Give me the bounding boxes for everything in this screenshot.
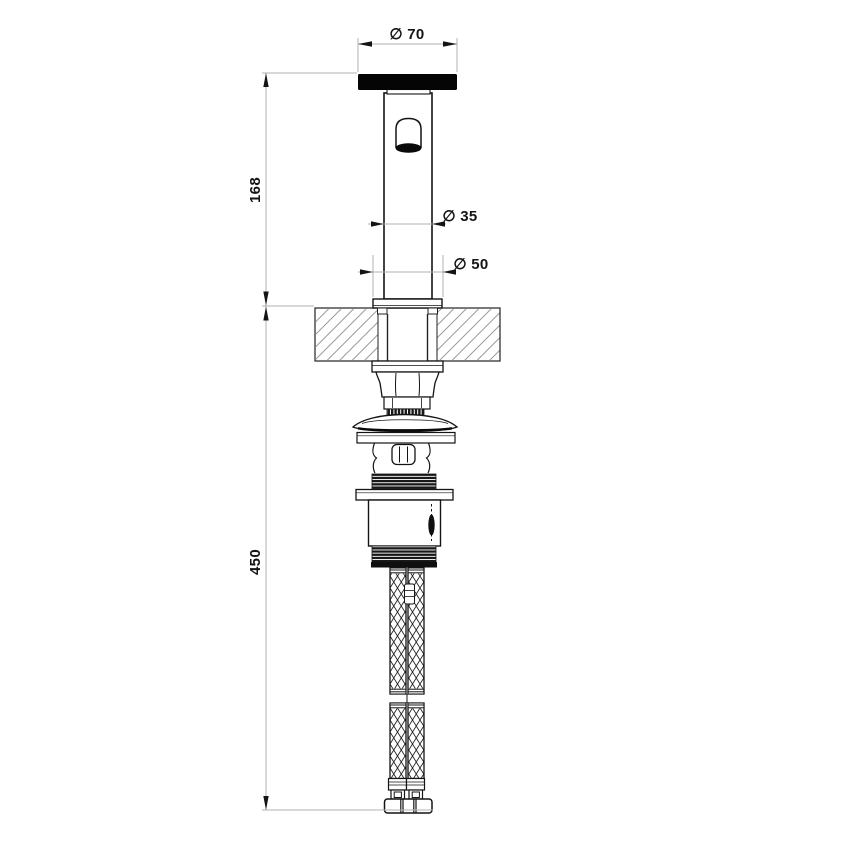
flange-lip-left [378,308,388,314]
ferrule-left [389,779,407,791]
arrow-down-icon [263,796,268,810]
faucet-body-cylinder [384,93,432,299]
ferrule-right [407,779,425,791]
side-port-detail [428,515,434,536]
countertop-hatch-left [316,309,378,360]
shank-tube-fill [388,314,428,361]
arrow-down-icon [263,292,268,306]
drain-collar [384,397,430,409]
dim-168-label: 168 [247,177,264,203]
mounting-shank [378,308,438,361]
faucet-top-disc [358,74,457,90]
hose-left-segment-a [390,568,406,694]
crimp-window-left [394,792,401,798]
hose-right-segment-b [408,703,424,779]
dimension-dia-70: ∅ 70 [358,26,457,72]
dim-dia-35-label: ∅ 35 [442,208,477,225]
drain-knob [392,445,415,465]
waste-plate [357,433,455,444]
base-flange [373,299,442,308]
arrow-up-icon [263,307,268,321]
backing-washer [372,361,443,372]
arrow-left-icon [358,41,372,46]
threaded-section-upper [372,474,436,489]
hose-end-fittings [385,779,433,814]
spout-outlet-opening [396,143,422,153]
mounting-hex-nut [376,372,439,397]
technical-drawing-canvas: ∅ 70 168 450 ∅ 35 ∅ 50 [0,0,850,850]
threaded-section-lower [372,546,436,562]
flexible-hoses [385,568,433,813]
dim-dia-70-label: ∅ 70 [389,26,424,43]
crimp-window-right [412,792,419,798]
drawing-page: ∅ 70 168 450 ∅ 35 ∅ 50 [0,0,850,850]
arrow-up-icon [263,73,268,87]
lower-flange [356,490,453,501]
thread-end-bar [371,562,437,568]
faucet-neck [387,90,430,95]
flange-lip-right [428,308,438,314]
drain-body-right [427,443,431,473]
arrow-right-icon [371,221,384,226]
dim-dia-50-label: ∅ 50 [453,256,488,273]
dim-450-label: 450 [247,549,264,575]
undercounter-hardware [353,361,457,568]
countertop-hatch-right [437,309,500,360]
arrow-right-icon [360,269,373,274]
drain-body-left [373,443,377,473]
dimension-height-168: 168 [247,73,357,306]
connector-nuts [385,799,433,813]
hose-left-segment-b [390,703,406,779]
arrow-right-icon [443,41,457,46]
popup-rod-window [405,584,415,604]
